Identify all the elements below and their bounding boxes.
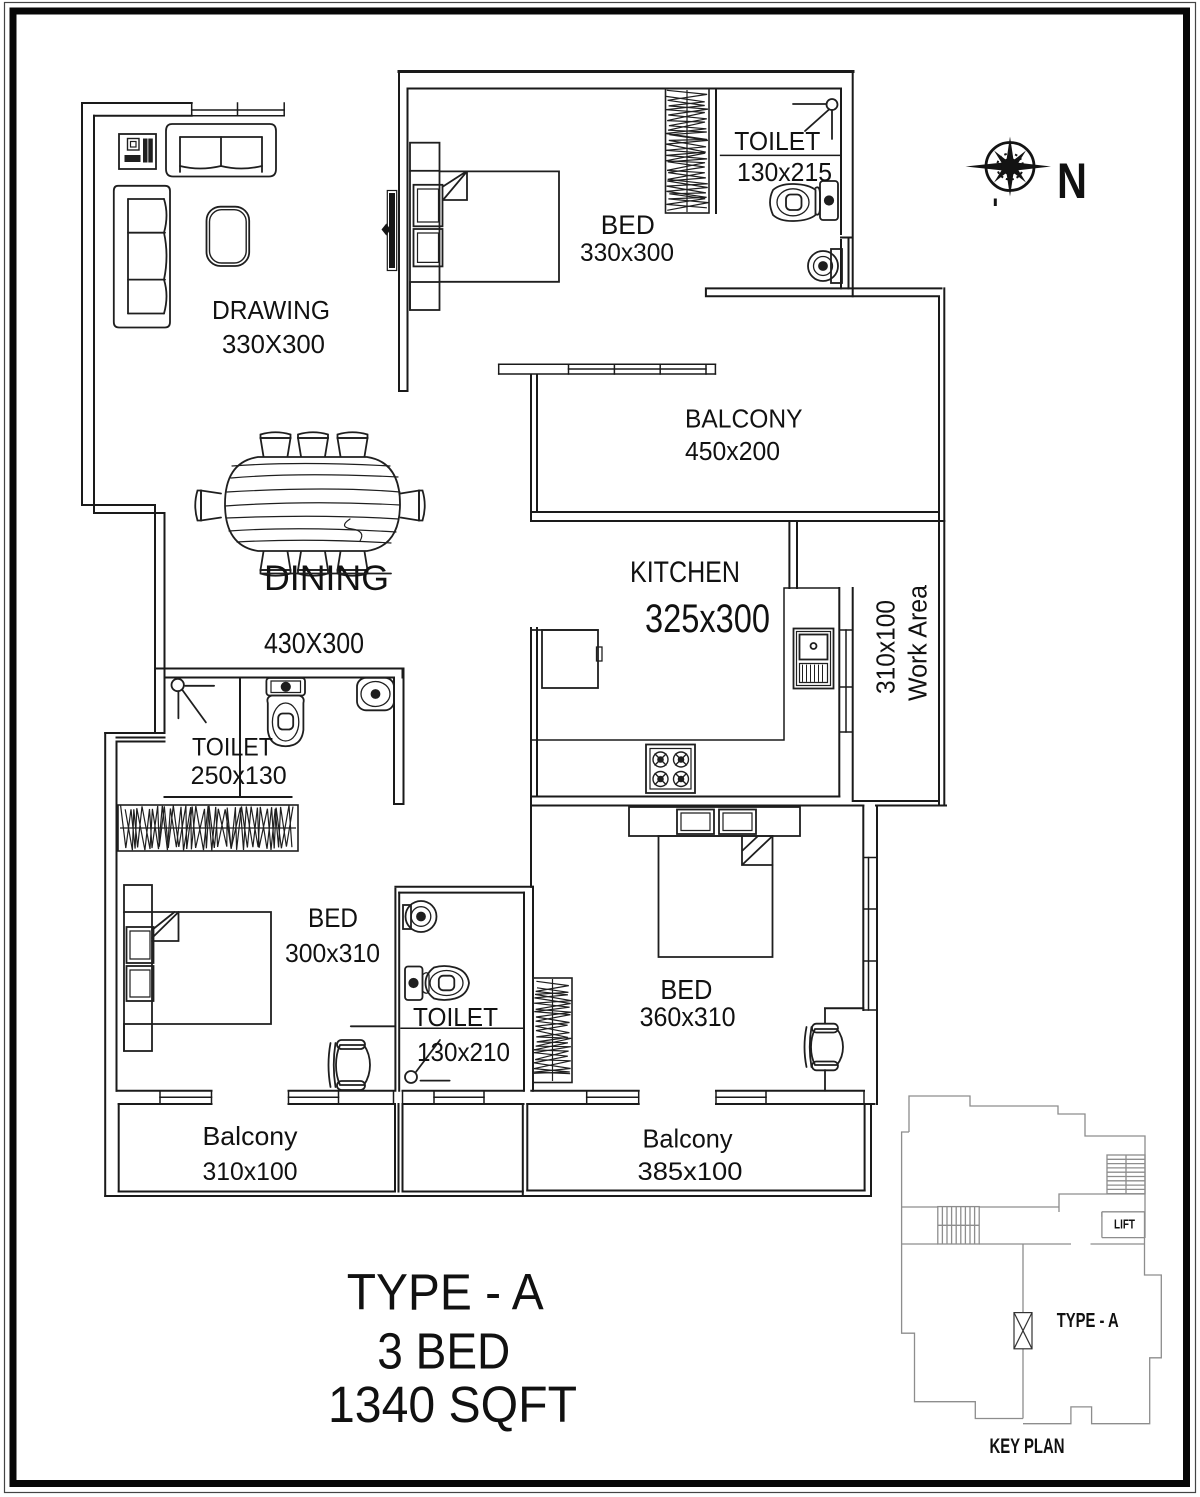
svg-text:300x310: 300x310 xyxy=(285,938,380,968)
svg-text:TOILET: TOILET xyxy=(192,734,273,762)
svg-text:385x100: 385x100 xyxy=(638,1158,743,1186)
svg-text:KITCHEN: KITCHEN xyxy=(630,556,740,589)
svg-text:BED: BED xyxy=(660,974,712,1005)
svg-text:TYPE - A: TYPE - A xyxy=(1057,1310,1119,1332)
svg-text:DRAWING: DRAWING xyxy=(212,295,330,325)
svg-text:450x200: 450x200 xyxy=(685,438,780,466)
svg-text:BED: BED xyxy=(308,903,358,933)
svg-text:Balcony: Balcony xyxy=(643,1124,733,1154)
svg-text:330x300: 330x300 xyxy=(580,239,674,267)
svg-text:330X300: 330X300 xyxy=(222,329,325,359)
svg-text:360x310: 360x310 xyxy=(640,1002,736,1032)
svg-text:1340 SQFT: 1340 SQFT xyxy=(328,1376,577,1433)
svg-text:TOILET: TOILET xyxy=(734,126,820,156)
svg-text:130x215: 130x215 xyxy=(737,157,832,187)
svg-text:Work Area: Work Area xyxy=(905,584,933,701)
svg-text:130x210: 130x210 xyxy=(417,1037,510,1067)
svg-text:TYPE - A: TYPE - A xyxy=(347,1264,544,1321)
svg-text:250x130: 250x130 xyxy=(191,762,287,790)
svg-text:310x100: 310x100 xyxy=(873,600,901,694)
svg-text:3 BED: 3 BED xyxy=(377,1323,510,1380)
svg-text:BALCONY: BALCONY xyxy=(685,404,803,434)
svg-text:BED: BED xyxy=(601,210,655,240)
svg-text:LIFT: LIFT xyxy=(1114,1217,1135,1232)
svg-text:KEY PLAN: KEY PLAN xyxy=(990,1435,1065,1458)
svg-text:430X300: 430X300 xyxy=(264,628,364,660)
svg-text:310x100: 310x100 xyxy=(203,1158,298,1186)
svg-text:TOILET: TOILET xyxy=(413,1002,498,1032)
svg-text:N: N xyxy=(1057,153,1087,209)
svg-text:Balcony: Balcony xyxy=(203,1121,298,1151)
svg-text:DINING: DINING xyxy=(264,559,389,598)
svg-text:325x300: 325x300 xyxy=(645,597,770,641)
